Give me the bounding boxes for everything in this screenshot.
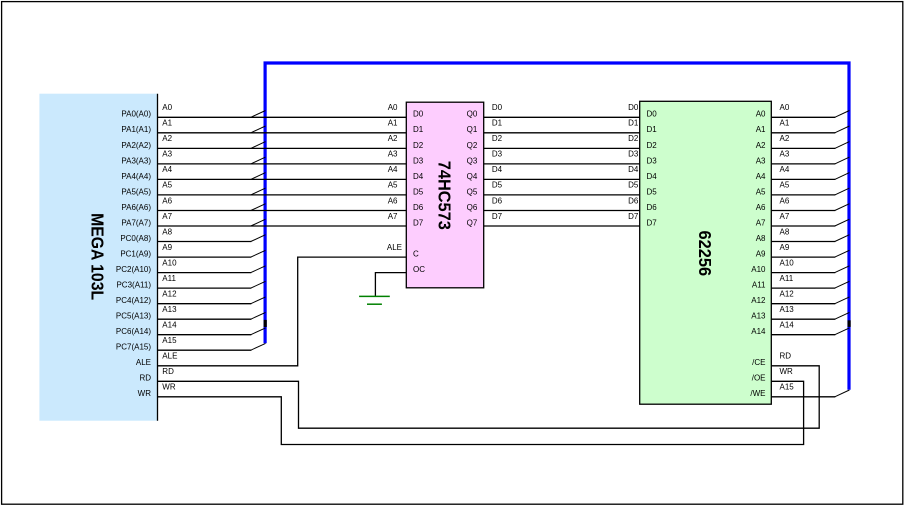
svg-text:/OE: /OE	[752, 374, 766, 383]
svg-text:D1: D1	[628, 119, 639, 128]
svg-text:A2: A2	[388, 134, 398, 143]
svg-text:D1: D1	[413, 125, 424, 134]
svg-text:D2: D2	[492, 134, 503, 143]
svg-text:D7: D7	[628, 212, 639, 221]
svg-text:A6: A6	[388, 196, 398, 205]
svg-text:D4: D4	[413, 172, 424, 181]
svg-text:RD: RD	[139, 374, 151, 383]
svg-text:A5: A5	[388, 181, 398, 190]
svg-text:D0: D0	[492, 103, 503, 112]
svg-text:D6: D6	[647, 203, 658, 212]
svg-text:A3: A3	[756, 156, 766, 165]
svg-text:PC6(A14): PC6(A14)	[116, 327, 151, 336]
svg-text:A3: A3	[780, 150, 790, 159]
svg-text:A12: A12	[162, 290, 177, 299]
svg-text:PC0(A8): PC0(A8)	[120, 234, 151, 243]
svg-text:A13: A13	[780, 305, 795, 314]
svg-text:A10: A10	[162, 258, 177, 267]
svg-text:ALE: ALE	[162, 352, 177, 361]
svg-text:A11: A11	[752, 281, 766, 290]
svg-text:A10: A10	[751, 265, 766, 274]
svg-text:62256: 62256	[695, 231, 715, 277]
svg-text:Q5: Q5	[467, 187, 478, 196]
svg-text:A9: A9	[756, 250, 766, 259]
svg-text:ALE: ALE	[387, 243, 402, 252]
svg-text:A5: A5	[756, 187, 766, 196]
svg-text:D6: D6	[492, 196, 503, 205]
svg-text:A4: A4	[388, 165, 398, 174]
svg-text:A8: A8	[780, 227, 790, 236]
svg-text:A9: A9	[162, 243, 172, 252]
svg-text:D4: D4	[628, 165, 639, 174]
svg-text:A1: A1	[162, 119, 172, 128]
svg-text:A11: A11	[780, 274, 794, 283]
svg-text:PA6(A6): PA6(A6)	[121, 203, 151, 212]
svg-text:A13: A13	[162, 305, 177, 314]
svg-text:A7: A7	[388, 212, 398, 221]
svg-text:A1: A1	[388, 119, 398, 128]
svg-text:A12: A12	[780, 290, 795, 299]
svg-text:PA3(A3): PA3(A3)	[121, 156, 151, 165]
svg-text:PC7(A15): PC7(A15)	[116, 343, 151, 352]
svg-text:ALE: ALE	[136, 358, 151, 367]
svg-text:D3: D3	[628, 150, 639, 159]
svg-text:A6: A6	[756, 203, 766, 212]
svg-text:PA4(A4): PA4(A4)	[121, 172, 151, 181]
svg-text:A9: A9	[780, 243, 790, 252]
svg-text:A8: A8	[756, 234, 766, 243]
svg-text:A11: A11	[162, 274, 176, 283]
svg-text:74HC573: 74HC573	[435, 161, 455, 230]
svg-text:A7: A7	[756, 218, 766, 227]
svg-text:WR: WR	[780, 367, 794, 376]
svg-text:D7: D7	[413, 218, 424, 227]
svg-text:A0: A0	[780, 103, 790, 112]
svg-text:A3: A3	[388, 150, 398, 159]
svg-text:D7: D7	[647, 218, 658, 227]
svg-text:A14: A14	[162, 321, 177, 330]
svg-text:A0: A0	[388, 103, 398, 112]
svg-text:A14: A14	[751, 327, 766, 336]
svg-text:D3: D3	[647, 156, 658, 165]
svg-text:A4: A4	[756, 172, 766, 181]
svg-text:D3: D3	[413, 156, 424, 165]
svg-text:A8: A8	[162, 227, 172, 236]
svg-text:A7: A7	[780, 212, 790, 221]
svg-text:D6: D6	[413, 203, 424, 212]
svg-text:A4: A4	[162, 165, 172, 174]
svg-text:A6: A6	[162, 196, 172, 205]
svg-text:A0: A0	[756, 110, 766, 119]
svg-text:D2: D2	[628, 134, 639, 143]
svg-text:C: C	[413, 250, 419, 259]
svg-text:PA7(A7): PA7(A7)	[121, 218, 151, 227]
svg-text:Q0: Q0	[467, 110, 478, 119]
svg-text:OC: OC	[413, 265, 425, 274]
svg-text:A15: A15	[780, 383, 795, 392]
svg-text:D5: D5	[413, 187, 424, 196]
svg-text:D1: D1	[647, 125, 658, 134]
svg-text:MEGA 103L: MEGA 103L	[88, 213, 108, 300]
svg-text:A6: A6	[780, 196, 790, 205]
svg-text:D0: D0	[413, 110, 424, 119]
svg-text:PC3(A11): PC3(A11)	[116, 281, 151, 290]
svg-text:PA2(A2): PA2(A2)	[121, 141, 151, 150]
svg-text:A2: A2	[162, 134, 172, 143]
svg-text:RD: RD	[780, 352, 792, 361]
svg-text:A12: A12	[751, 296, 766, 305]
svg-text:D1: D1	[492, 119, 503, 128]
svg-text:PA1(A1): PA1(A1)	[121, 125, 151, 134]
svg-text:Q7: Q7	[467, 218, 478, 227]
svg-text:Q2: Q2	[467, 141, 478, 150]
svg-text:A7: A7	[162, 212, 172, 221]
svg-text:Q6: Q6	[467, 203, 478, 212]
svg-text:D4: D4	[492, 165, 503, 174]
svg-text:/CE: /CE	[752, 358, 765, 367]
svg-text:D2: D2	[413, 141, 424, 150]
svg-text:D2: D2	[647, 141, 658, 150]
svg-text:A2: A2	[756, 141, 766, 150]
svg-text:A5: A5	[162, 181, 172, 190]
svg-text:A4: A4	[780, 165, 790, 174]
svg-text:D3: D3	[492, 150, 503, 159]
svg-text:A0: A0	[162, 103, 172, 112]
svg-text:PC4(A12): PC4(A12)	[116, 296, 151, 305]
svg-text:Q4: Q4	[467, 172, 478, 181]
svg-text:RD: RD	[162, 367, 174, 376]
svg-text:A1: A1	[780, 119, 790, 128]
svg-text:D0: D0	[628, 103, 639, 112]
svg-text:PC5(A13): PC5(A13)	[116, 312, 151, 321]
svg-text:A5: A5	[780, 181, 790, 190]
svg-text:Q3: Q3	[467, 156, 478, 165]
svg-text:A13: A13	[751, 312, 766, 321]
svg-text:A3: A3	[162, 150, 172, 159]
svg-text:A10: A10	[780, 258, 795, 267]
svg-text:D0: D0	[647, 110, 658, 119]
svg-text:Q1: Q1	[467, 125, 478, 134]
svg-text:/WE: /WE	[750, 389, 765, 398]
svg-text:D5: D5	[647, 187, 658, 196]
svg-text:A14: A14	[780, 321, 795, 330]
svg-text:PC2(A10): PC2(A10)	[116, 265, 151, 274]
svg-text:WR: WR	[138, 389, 152, 398]
svg-text:PA5(A5): PA5(A5)	[121, 187, 151, 196]
svg-text:PA0(A0): PA0(A0)	[121, 110, 151, 119]
svg-text:A15: A15	[162, 336, 177, 345]
svg-text:D7: D7	[492, 212, 503, 221]
svg-text:D5: D5	[628, 181, 639, 190]
svg-text:WR: WR	[162, 383, 176, 392]
svg-text:A1: A1	[756, 125, 766, 134]
svg-text:D5: D5	[492, 181, 503, 190]
svg-text:A2: A2	[780, 134, 790, 143]
svg-text:D4: D4	[647, 172, 658, 181]
svg-text:D6: D6	[628, 196, 639, 205]
svg-text:PC1(A9): PC1(A9)	[120, 250, 151, 259]
